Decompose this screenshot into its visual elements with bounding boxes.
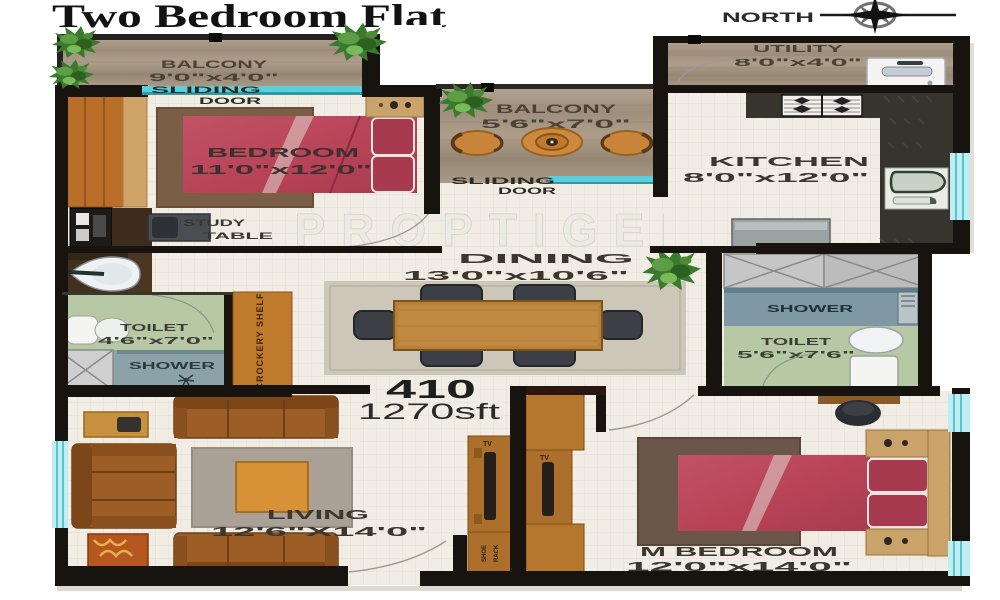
svg-text:TOILET: TOILET (120, 323, 188, 334)
svg-text:9'0"x4'0": 9'0"x4'0" (149, 72, 279, 84)
svg-text:BEDROOM: BEDROOM (207, 145, 359, 160)
svg-text:1270sft: 1270sft (358, 399, 500, 424)
svg-text:TV: TV (483, 441, 492, 448)
svg-text:BALCONY: BALCONY (496, 102, 616, 116)
svg-text:BALCONY: BALCONY (161, 59, 268, 71)
svg-text:SHOWER: SHOWER (767, 304, 854, 315)
svg-text:DOOR: DOOR (498, 186, 557, 196)
svg-text:TV: TV (540, 455, 549, 462)
svg-text:12'6"X14'0": 12'6"X14'0" (211, 524, 427, 539)
svg-text:SHOWER: SHOWER (129, 361, 216, 372)
svg-text:11'0"x12'0": 11'0"x12'0" (190, 162, 372, 177)
svg-text:NORTH: NORTH (722, 9, 814, 25)
svg-text:SLIDING: SLIDING (451, 176, 555, 186)
svg-text:CROCKERY SHELF: CROCKERY SHELF (255, 292, 265, 389)
svg-text:SLIDING: SLIDING (151, 85, 261, 95)
svg-text:LIVING: LIVING (267, 507, 369, 522)
svg-text:DINING: DINING (458, 251, 634, 266)
svg-text:SHOE: SHOE (482, 545, 488, 562)
svg-text:UTILITY: UTILITY (753, 44, 844, 55)
svg-text:KITCHEN: KITCHEN (709, 154, 869, 169)
svg-text:RACK: RACK (494, 544, 500, 562)
svg-text:DOOR: DOOR (199, 96, 262, 106)
svg-text:5'6"x7'6": 5'6"x7'6" (737, 350, 856, 361)
svg-text:M BEDROOM: M BEDROOM (640, 544, 838, 559)
svg-text:8'0"x4'0": 8'0"x4'0" (734, 57, 862, 69)
svg-text:STUDY: STUDY (183, 218, 245, 228)
svg-text:TOILET: TOILET (761, 337, 831, 348)
svg-text:TABLE: TABLE (203, 231, 273, 241)
svg-text:4'6"x7'0": 4'6"x7'0" (98, 336, 215, 347)
svg-text:8'0"x12'0": 8'0"x12'0" (683, 170, 869, 185)
svg-text:13'0"x10'6": 13'0"x10'6" (403, 268, 629, 283)
